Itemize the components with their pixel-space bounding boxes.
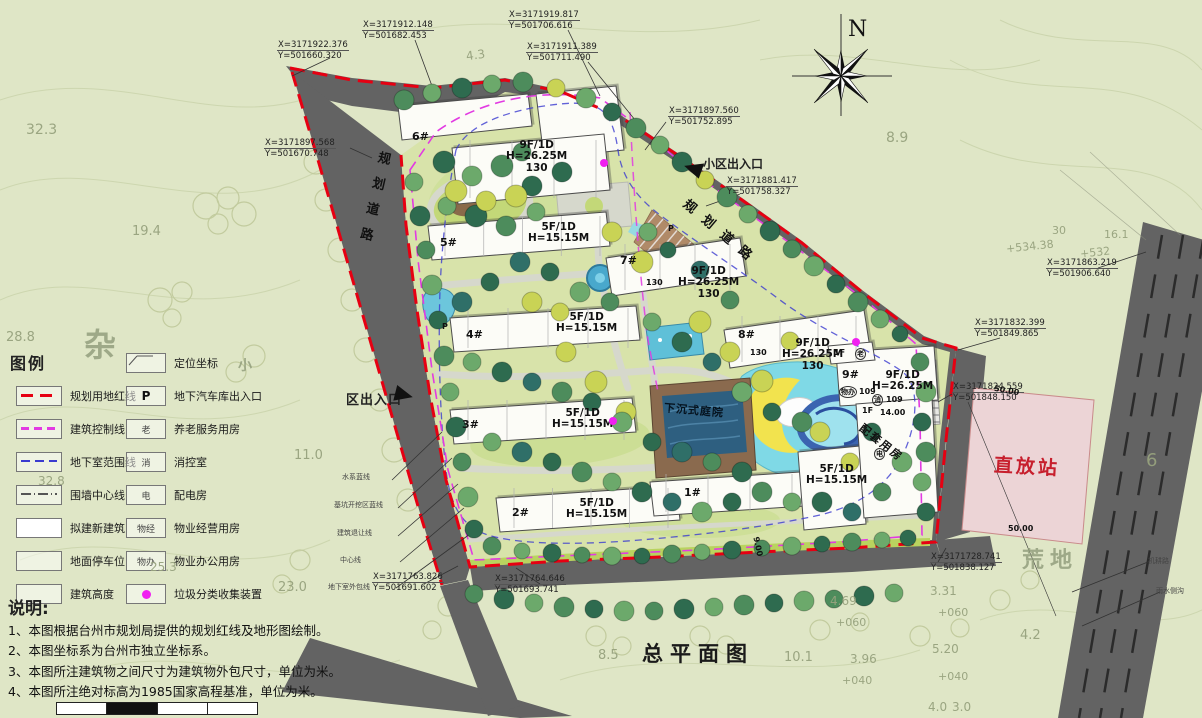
legend-item-elder-care: 老 养老服务用房 <box>126 418 240 440</box>
tree <box>892 326 908 342</box>
page-title: 总平面图 <box>642 638 754 668</box>
tree <box>543 544 561 562</box>
tree <box>512 442 532 462</box>
tree <box>514 543 530 559</box>
site-plan-canvas: N 总平面图 规划道路 规划道路 小区出入口 区出入口 下沉式庭院 配套用房 直… <box>0 0 1202 718</box>
tree <box>672 332 692 352</box>
tree <box>554 597 574 617</box>
legend-item-new-building: 拟建新建筑 <box>16 517 125 539</box>
tree <box>873 483 891 501</box>
tree <box>603 473 621 491</box>
room-code-badge: 电 <box>874 448 885 460</box>
terrain-elevation-label: 4.69 <box>830 594 857 608</box>
tree <box>663 545 681 563</box>
edge-road-label: 机耕路 <box>1148 556 1169 566</box>
tree <box>643 433 661 451</box>
tree <box>783 537 801 555</box>
tree <box>723 541 741 559</box>
tree <box>720 342 740 362</box>
building-spec-label: 5F/1DH=15.15M <box>566 498 627 521</box>
tree <box>585 600 603 618</box>
tree <box>843 533 861 551</box>
coord-callout: X=3171863.219Y=501906.640 <box>1046 258 1118 279</box>
boundary-line-label: 中心线 <box>340 555 361 565</box>
tree <box>663 493 681 511</box>
legend-item-fire-control: 消 消控室 <box>126 451 207 473</box>
building-spec-label: 9F/1DH=26.25M <box>872 370 933 393</box>
tree <box>751 370 773 392</box>
boundary-line-label: 地下室外包线 <box>328 582 370 592</box>
coordinate-symbol-icon <box>126 353 166 373</box>
tree <box>760 221 780 241</box>
terrain-elevation-label: 30 <box>1052 224 1066 237</box>
building-spec-label: 5F/1DH=15.15M <box>552 408 613 431</box>
tree <box>810 422 830 442</box>
tree <box>527 203 545 221</box>
terrain-elevation-label: 8.9 <box>886 130 908 146</box>
boundary-line-label: 水系蓝线 <box>342 472 370 482</box>
tree <box>794 591 814 611</box>
coord-callout: X=3171897.560Y=501752.895 <box>668 106 740 127</box>
legend-item-garage-entry: P 地下汽车库出入口 <box>126 385 262 407</box>
scale-bar <box>56 702 258 715</box>
terrain-elevation-label: 16.1 <box>1104 228 1129 241</box>
tree <box>913 473 931 491</box>
map-micro-label: P <box>442 322 448 331</box>
tree <box>814 536 830 552</box>
tree <box>452 78 472 98</box>
tree <box>522 292 542 312</box>
edge-road-label: 雨水侧沟 <box>1156 586 1184 596</box>
tree <box>674 599 694 619</box>
tree <box>848 292 868 312</box>
terrain-elevation-label: 5.20 <box>932 642 959 656</box>
repeater-station-label: 直放站 <box>993 450 1060 480</box>
legend: 图例 规划用地红线 建筑控制线 地下室范围线 围墙中心线 拟建新建筑 地面停车位… <box>6 338 306 596</box>
tree <box>570 282 590 302</box>
coord-callout: X=3171911.389Y=501711.490 <box>526 42 598 63</box>
building-number: 8# <box>738 328 755 341</box>
tree <box>394 90 414 110</box>
tree <box>445 180 467 202</box>
tree <box>732 462 752 482</box>
terrain-elevation-label: 4.0 <box>928 700 947 714</box>
building-number: 5# <box>440 236 457 249</box>
terrain-elevation-label: 23.0 <box>278 580 307 595</box>
garbage-collection-dot <box>600 159 608 167</box>
terrain-elevation-label: 25.3 <box>150 560 177 574</box>
room-code-badge: 老 <box>855 348 866 360</box>
building-spec-label: 9F/1DH=26.25M130 <box>506 140 567 174</box>
tree <box>660 242 676 258</box>
tree <box>703 453 721 471</box>
tree <box>739 205 757 223</box>
notes-block: 说明: 1、本图根据台州市规划局提供的规划红线及地形图绘制。 2、本图坐标系为台… <box>8 594 478 702</box>
tree <box>441 383 459 401</box>
map-micro-label: 130 <box>750 348 767 357</box>
terrain-elevation-label: 3.96 <box>850 652 877 666</box>
building-number: 1# <box>684 486 701 499</box>
tree <box>433 151 455 173</box>
tree <box>732 382 752 402</box>
coord-callout: X=3171912.148Y=501682.453 <box>362 20 434 41</box>
tree <box>483 537 501 555</box>
tree <box>672 442 692 462</box>
terrain-elevation-label: 32.3 <box>26 122 57 138</box>
tree <box>705 598 723 616</box>
tree <box>734 595 754 615</box>
terrain-elevation-label: 28.8 <box>6 330 35 345</box>
tree <box>453 453 471 471</box>
tree <box>913 413 931 431</box>
terrain-elevation-label: 3.31 <box>930 584 957 598</box>
tree <box>871 310 889 328</box>
tree <box>916 442 936 462</box>
building-spec-label: 5F/1DH=15.15M <box>806 464 867 487</box>
tree <box>843 503 861 521</box>
north-compass: N <box>786 4 898 124</box>
terrain-elevation-label: 4.2 <box>1020 628 1041 643</box>
room-code-badge: 消 <box>872 394 883 406</box>
legend-item-coordinate: 定位坐标 <box>126 352 218 374</box>
tree <box>694 544 710 560</box>
map-micro-label: P <box>668 224 674 233</box>
tree <box>651 136 669 154</box>
tree <box>543 453 561 471</box>
building-spec-label: 5F/1DH=15.15M <box>556 312 617 335</box>
tree <box>692 502 712 522</box>
legend-item-basement-line: 地下室范围线 <box>16 451 136 473</box>
legend-item-power-room: 电 配电房 <box>126 484 207 506</box>
terrain-elevation-label: 11.0 <box>294 448 323 463</box>
terrain-elevation-label: +060 <box>938 606 968 619</box>
note-item: 1、本图根据台州市规划局提供的规划红线及地形图绘制。 <box>8 621 478 641</box>
building-spec-label: 9F/1DH=26.25M130 <box>678 266 739 300</box>
building-number: 3# <box>462 418 479 431</box>
tree <box>917 503 935 521</box>
tree <box>603 103 621 121</box>
map-micro-label: 1F <box>862 406 873 415</box>
note-item: 4、本图所注绝对标高为1985国家高程基准，单位为米。 <box>8 682 478 702</box>
building-number: 7# <box>620 254 637 267</box>
coord-callout: X=3171832.399Y=501849.865 <box>974 318 1046 339</box>
tree <box>510 252 530 272</box>
tree <box>601 293 619 311</box>
terrain-elevation-label: 3.0 <box>952 700 971 714</box>
tree <box>572 462 592 482</box>
legend-item-wall-line: 围墙中心线 <box>16 484 125 506</box>
tree <box>632 482 652 502</box>
legend-item-property-business: 物经 物业经营用房 <box>126 517 240 539</box>
terrain-elevation-label: +040 <box>842 674 872 687</box>
tree <box>634 548 650 564</box>
coord-callout: X=3171881.417Y=501758.327 <box>726 176 798 197</box>
tree <box>639 223 657 241</box>
tree <box>463 353 481 371</box>
building-spec-label: 5F/1DH=15.15M <box>528 222 589 245</box>
legend-title: 图例 <box>10 350 46 374</box>
building-number: 4# <box>466 328 483 341</box>
map-micro-label: 109 <box>886 395 903 404</box>
tree <box>885 584 903 602</box>
tree <box>496 216 516 236</box>
tree <box>513 72 533 92</box>
legend-item-parking: 地面停车位 <box>16 550 125 572</box>
tree <box>643 313 661 331</box>
tree <box>645 602 663 620</box>
tree <box>812 492 832 512</box>
tree <box>874 532 890 548</box>
terrain-elevation-label: +060 <box>836 616 866 629</box>
map-micro-label: 14.00 <box>880 408 905 417</box>
terrain-elevation-label: 32.8 <box>38 474 65 488</box>
tree <box>765 594 783 612</box>
map-micro-label: 1F <box>834 348 845 357</box>
tree <box>783 493 801 511</box>
tree <box>476 191 496 211</box>
tree <box>417 241 435 259</box>
tree <box>574 547 590 563</box>
tree <box>505 185 527 207</box>
tree <box>405 173 423 191</box>
legend-item-property-office: 物办 物业办公用房 <box>126 550 240 572</box>
tree <box>763 403 781 421</box>
terrain-elevation-label: 4.3 <box>465 47 486 64</box>
terrain-elevation-label: 19.4 <box>132 224 161 239</box>
tree <box>854 586 874 606</box>
tree <box>410 206 430 226</box>
tree <box>423 84 441 102</box>
building-number: 9# <box>842 368 859 381</box>
notes-title: 说明: <box>8 594 478 619</box>
coord-callout: X=3171763.826Y=501691.602 <box>372 572 444 593</box>
coord-callout: X=3171764.646Y=501693.741 <box>494 574 566 595</box>
tree <box>792 412 812 432</box>
legend-item-control-line: 建筑控制线 <box>16 418 125 440</box>
tree <box>483 433 501 451</box>
tree <box>541 263 559 281</box>
garbage-collection-dot <box>852 338 860 346</box>
tree <box>752 482 772 502</box>
room-code-badge: 物办 <box>839 386 857 398</box>
tree <box>452 292 472 312</box>
tree <box>525 594 543 612</box>
tree <box>783 240 801 258</box>
tree <box>481 273 499 291</box>
coord-callout: X=3171922.376Y=501660.320 <box>277 40 349 61</box>
tree <box>576 88 596 108</box>
tree <box>603 547 621 565</box>
tree <box>723 493 741 511</box>
tree <box>626 118 646 138</box>
note-item: 2、本图坐标系为台州市独立坐标系。 <box>8 641 478 661</box>
legend-item-red-line: 规划用地红线 <box>16 385 136 407</box>
tree <box>483 75 501 93</box>
terrain-elevation-label: 8.5 <box>598 648 619 663</box>
terrain-elevation-label: 6 <box>1146 450 1157 471</box>
map-micro-label: 130 <box>646 278 663 287</box>
terrain-elevation-label: 10.1 <box>784 650 813 665</box>
coord-callout: X=3171728.741Y=501838.127 <box>930 552 1002 573</box>
tree <box>689 311 711 333</box>
terrain-character-label: 荒地 <box>1022 542 1078 574</box>
tree <box>462 166 482 186</box>
north-label: N <box>848 17 867 42</box>
entrance-label-main: 小区出入口 <box>703 155 763 172</box>
tree <box>585 371 607 393</box>
tree <box>458 487 478 507</box>
note-item: 3、本图所注建筑物之间尺寸为建筑物外包尺寸，单位为米。 <box>8 662 478 682</box>
tree <box>556 342 576 362</box>
terrain-character-label: 小 <box>238 355 252 375</box>
tree <box>422 275 442 295</box>
tree <box>900 530 916 546</box>
building-number: 2# <box>512 506 529 519</box>
tree <box>434 346 454 366</box>
tree <box>602 222 622 242</box>
tree <box>547 79 565 97</box>
tree <box>523 373 541 391</box>
tree <box>492 362 512 382</box>
tree <box>827 275 845 293</box>
garbage-collection-dot <box>609 417 617 425</box>
map-micro-label: 50.00 <box>1008 524 1033 533</box>
boundary-line-label: 建筑退让线 <box>337 528 372 538</box>
boundary-line-label: 基坑开挖区蓝线 <box>334 500 383 510</box>
coord-callout: X=3171919.817Y=501706.616 <box>508 10 580 31</box>
tree <box>465 520 483 538</box>
terrain-elevation-label: +040 <box>938 670 968 683</box>
coord-callout: X=3171897.568Y=501670.748 <box>264 138 336 159</box>
tree <box>703 353 721 371</box>
tree <box>614 601 634 621</box>
terrain-character-label: 杂 <box>84 320 116 366</box>
building-number: 6# <box>412 130 429 143</box>
tree <box>804 256 824 276</box>
tree <box>552 382 572 402</box>
